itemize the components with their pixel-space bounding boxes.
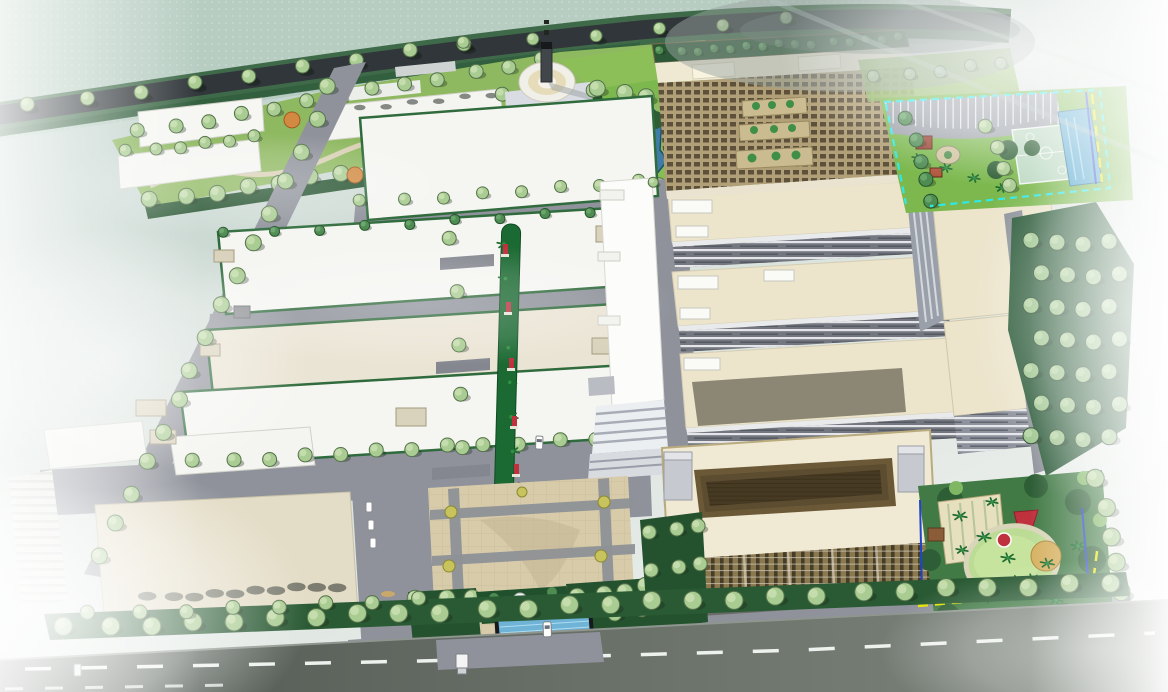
car-icon — [366, 502, 372, 512]
master-plan-canvas: Aerial master-plan rendering of an indus… — [0, 0, 1168, 692]
tree-shadow — [308, 583, 326, 592]
tree-shadow — [459, 94, 471, 100]
tree-shadow — [433, 98, 445, 104]
plaza-tower — [541, 46, 552, 82]
garden-pavilion — [928, 528, 944, 541]
site-plan-rendering: Aerial master-plan rendering of an indus… — [0, 0, 1168, 692]
car-icon — [536, 436, 543, 449]
car-icon — [368, 520, 374, 530]
car-icon — [370, 538, 376, 548]
red-circle — [997, 533, 1011, 547]
tree-shadow — [354, 105, 366, 111]
tree-shadow — [328, 583, 346, 592]
car-icon — [543, 622, 552, 637]
tree-shadow — [407, 99, 419, 105]
tree-shadow — [380, 104, 392, 110]
truck-icon — [456, 654, 468, 674]
